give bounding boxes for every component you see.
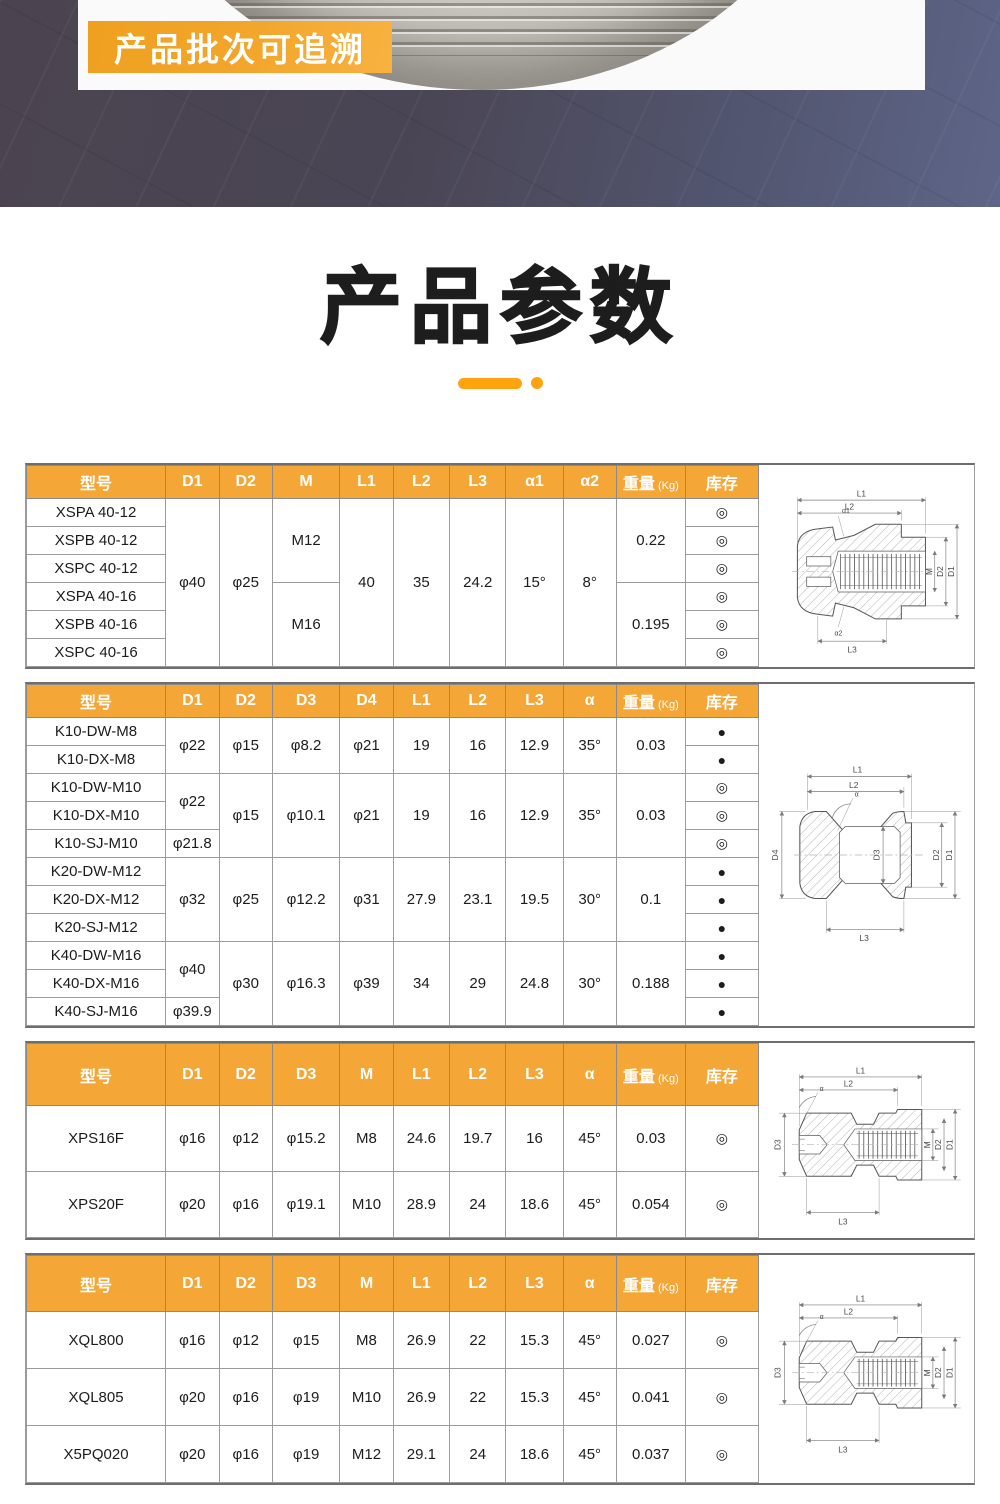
- table-cell: 30°: [563, 858, 616, 942]
- traceability-badge: 产品批次可追溯: [88, 21, 392, 73]
- stock-indicator: ◎: [685, 1369, 758, 1426]
- angle-label: α: [819, 1314, 823, 1321]
- header-row: 型号D1D2D3ML1L2L3α重量 (Kg)库存: [27, 1044, 759, 1106]
- table-cell: φ22: [166, 774, 219, 830]
- angle-label: α1: [841, 508, 849, 515]
- table-cell: φ16: [219, 1369, 272, 1426]
- table-cell: φ40: [166, 499, 219, 667]
- table-cell: 23.1: [450, 858, 506, 942]
- table-cell: 0.03: [616, 774, 685, 858]
- table-cell: φ21.8: [166, 830, 219, 858]
- table-cell: K40-DW-M16: [27, 942, 166, 970]
- table-cell: 19.5: [506, 858, 563, 942]
- table-cell: φ16: [219, 1426, 272, 1483]
- column-header-unit: (Kg): [655, 1282, 679, 1294]
- table-cell: 26.9: [393, 1312, 449, 1369]
- column-header: L3: [506, 685, 563, 718]
- table-cell: 16: [450, 774, 506, 858]
- table-cell: 0.195: [616, 583, 685, 667]
- technical-drawing-xsp40: L1 L2 L3 M D2 D1 α1 α2: [759, 465, 974, 667]
- table-cell: φ15: [219, 774, 272, 858]
- stock-indicator: ●: [685, 914, 758, 942]
- table-cell: M10: [340, 1172, 393, 1238]
- table-row: K10-DW-M8φ22φ15φ8.2φ21191612.935°0.03●: [27, 718, 759, 746]
- table-row: X5PQ020φ20φ16φ19M1229.12418.645°0.037◎: [27, 1426, 759, 1483]
- table-cell: 19: [393, 718, 449, 774]
- table-cell: 12.9: [506, 718, 563, 774]
- table-cell: 24.6: [393, 1106, 449, 1172]
- table-cell: 35: [393, 499, 449, 667]
- column-header: L2: [450, 1256, 506, 1312]
- angle-label: α2: [834, 631, 842, 638]
- spec-panel-k-series: 型号D1D2D3D4L1L2L3α重量 (Kg)库存K10-DW-M8φ22φ1…: [25, 682, 975, 1028]
- table-cell: φ22: [166, 718, 219, 774]
- table-cell: M8: [340, 1106, 393, 1172]
- stock-indicator: ◎: [685, 774, 758, 802]
- stock-indicator: ◎: [685, 527, 758, 555]
- table-row: K10-DW-M10φ22φ15φ10.1φ21191612.935°0.03◎: [27, 774, 759, 802]
- table-cell: 15°: [506, 499, 563, 667]
- table-cell: 27.9: [393, 858, 449, 942]
- table-cell: 19: [393, 774, 449, 858]
- table-cell: 0.22: [616, 499, 685, 583]
- table-cell: φ20: [166, 1369, 219, 1426]
- table-row: XPS20Fφ20φ16φ19.1M1028.92418.645°0.054◎: [27, 1172, 759, 1238]
- stock-indicator: ◎: [685, 1312, 758, 1369]
- table-cell: XQL800: [27, 1312, 166, 1369]
- table-cell: 22: [450, 1369, 506, 1426]
- dim-label: L2: [849, 780, 859, 790]
- column-header: D1: [166, 685, 219, 718]
- dim-label: D2: [933, 1139, 943, 1150]
- column-header: M: [340, 1256, 393, 1312]
- table-cell: 15.3: [506, 1369, 563, 1426]
- table-cell: 0.03: [616, 718, 685, 774]
- table-cell: 12.9: [506, 774, 563, 858]
- column-header: 型号: [27, 1044, 166, 1106]
- column-header: D3: [272, 1044, 339, 1106]
- dim-label: L3: [859, 933, 869, 943]
- spec-table-xql: 型号D1D2D3ML1L2L3α重量 (Kg)库存XQL800φ16φ12φ15…: [26, 1255, 759, 1483]
- table-cell: φ32: [166, 858, 219, 942]
- table-cell: 8°: [563, 499, 616, 667]
- table-cell: XSPB 40-16: [27, 611, 166, 639]
- column-header: α: [563, 1044, 616, 1106]
- drawing-svg-socket-plug: L1 L2 L3 D3 M D2: [764, 1048, 970, 1234]
- table-cell: K10-DW-M8: [27, 718, 166, 746]
- underline-dot: [531, 377, 543, 389]
- angle-label: α: [819, 1085, 823, 1092]
- column-header: 库存: [685, 1044, 758, 1106]
- column-header-unit: (Kg): [655, 1073, 679, 1085]
- stock-indicator: ●: [685, 942, 758, 970]
- table-cell: M8: [340, 1312, 393, 1369]
- column-header: α2: [563, 466, 616, 499]
- table-cell: 19.7: [450, 1106, 506, 1172]
- stock-indicator: ●: [685, 746, 758, 774]
- table-cell: XPS20F: [27, 1172, 166, 1238]
- spec-table-k-series: 型号D1D2D3D4L1L2L3α重量 (Kg)库存K10-DW-M8φ22φ1…: [26, 684, 759, 1026]
- dim-label: D4: [770, 849, 780, 860]
- column-header: L1: [393, 1044, 449, 1106]
- dim-label: D3: [772, 1139, 782, 1150]
- dim-label: L1: [856, 488, 866, 498]
- table-cell: 26.9: [393, 1369, 449, 1426]
- table-cell: M12: [340, 1426, 393, 1483]
- table-cell: K20-SJ-M12: [27, 914, 166, 942]
- column-header: 库存: [685, 685, 758, 718]
- table-cell: X5PQ020: [27, 1426, 166, 1483]
- table-row: XPS16Fφ16φ12φ15.2M824.619.71645°0.03◎: [27, 1106, 759, 1172]
- dim-label: L1: [855, 1065, 865, 1075]
- header-row: 型号D1D2ML1L2L3α1α2重量 (Kg)库存: [27, 466, 759, 499]
- header-row: 型号D1D2D3ML1L2L3α重量 (Kg)库存: [27, 1256, 759, 1312]
- table-cell: 35°: [563, 718, 616, 774]
- stock-indicator: ◎: [685, 802, 758, 830]
- column-header: D2: [219, 466, 272, 499]
- column-header: 型号: [27, 685, 166, 718]
- table-cell: φ21: [340, 774, 393, 858]
- column-header-unit: (Kg): [655, 480, 679, 492]
- table-cell: K10-DW-M10: [27, 774, 166, 802]
- table-cell: M10: [340, 1369, 393, 1426]
- table-cell: φ25: [219, 858, 272, 942]
- dim-label: L1: [852, 765, 862, 775]
- table-cell: φ20: [166, 1426, 219, 1483]
- underline-bar: [458, 378, 522, 389]
- stock-indicator: ◎: [685, 499, 758, 527]
- dim-label: D2: [930, 849, 940, 860]
- column-header: L1: [393, 1256, 449, 1312]
- title-section: 产品参数: [0, 207, 1000, 389]
- stock-indicator: ◎: [685, 1172, 758, 1238]
- dim-label: L1: [855, 1293, 865, 1303]
- table-cell: XSPA 40-12: [27, 499, 166, 527]
- page-title: 产品参数: [0, 265, 1000, 351]
- table-cell: K10-DX-M10: [27, 802, 166, 830]
- dim-label: L3: [847, 644, 857, 654]
- table-cell: K40-SJ-M16: [27, 998, 166, 1026]
- stock-indicator: ●: [685, 886, 758, 914]
- stock-indicator: ◎: [685, 1426, 758, 1483]
- table-cell: φ8.2: [272, 718, 339, 774]
- dim-label: D2: [933, 1367, 943, 1378]
- table-cell: 45°: [563, 1369, 616, 1426]
- table-row: XQL800φ16φ12φ15M826.92215.345°0.027◎: [27, 1312, 759, 1369]
- table-cell: 29: [450, 942, 506, 1026]
- table-cell: φ10.1: [272, 774, 339, 858]
- spec-table-xsp40: 型号D1D2ML1L2L3α1α2重量 (Kg)库存XSPA 40-12φ40φ…: [26, 465, 759, 667]
- table-cell: φ31: [340, 858, 393, 942]
- table-cell: K20-DX-M12: [27, 886, 166, 914]
- column-header: L1: [393, 685, 449, 718]
- stock-indicator: ●: [685, 858, 758, 886]
- column-header: L3: [506, 1256, 563, 1312]
- column-header: D4: [340, 685, 393, 718]
- column-header: 型号: [27, 1256, 166, 1312]
- table-cell: 22: [450, 1312, 506, 1369]
- table-row: K40-DW-M16φ40φ30φ16.3φ39342924.830°0.188…: [27, 942, 759, 970]
- column-header: D1: [166, 466, 219, 499]
- column-header: 库存: [685, 466, 758, 499]
- table-cell: 0.041: [616, 1369, 685, 1426]
- dim-label: M: [922, 1369, 932, 1376]
- table-cell: φ21: [340, 718, 393, 774]
- column-header: 重量 (Kg): [616, 685, 685, 718]
- spec-panel-xps: 型号D1D2D3ML1L2L3α重量 (Kg)库存XPS16Fφ16φ12φ15…: [25, 1041, 975, 1240]
- table-row: XSPA 40-12φ40φ25M12403524.215°8°0.22◎: [27, 499, 759, 527]
- table-cell: φ16: [166, 1312, 219, 1369]
- stock-indicator: ◎: [685, 555, 758, 583]
- spec-panel-xsp40: 型号D1D2ML1L2L3α1α2重量 (Kg)库存XSPA 40-12φ40φ…: [25, 463, 975, 669]
- table-cell: φ19: [272, 1369, 339, 1426]
- column-header: α1: [506, 466, 563, 499]
- table-cell: 30°: [563, 942, 616, 1026]
- table-cell: φ25: [219, 499, 272, 667]
- table-cell: M12: [272, 499, 339, 583]
- table-cell: φ12.2: [272, 858, 339, 942]
- table-cell: 34: [393, 942, 449, 1026]
- table-cell: φ39.9: [166, 998, 219, 1026]
- table-cell: φ19: [272, 1426, 339, 1483]
- drawing-svg-spool-bushing: L1 L2 L3 D4 D3 D2: [762, 730, 972, 980]
- dim-label: L3: [838, 1445, 848, 1455]
- table-cell: 24: [450, 1172, 506, 1238]
- column-header: M: [340, 1044, 393, 1106]
- column-header: 型号: [27, 466, 166, 499]
- angle-label: α: [854, 790, 858, 798]
- technical-drawing-xps: L1 L2 L3 D3 M D2: [759, 1043, 974, 1238]
- column-header: D3: [272, 1256, 339, 1312]
- dim-label: D1: [946, 566, 956, 577]
- column-header: M: [272, 466, 339, 499]
- table-cell: 0.054: [616, 1172, 685, 1238]
- technical-drawing-xql: L1 L2 L3 D3 M D2: [759, 1255, 974, 1483]
- table-cell: 40: [340, 499, 393, 667]
- traceability-badge-label: 产品批次可追溯: [114, 23, 366, 71]
- table-cell: 0.188: [616, 942, 685, 1026]
- dim-label: D3: [772, 1367, 782, 1378]
- title-underline: [0, 377, 1000, 389]
- column-header: D2: [219, 1256, 272, 1312]
- table-row: XQL805φ20φ16φ19M1026.92215.345°0.041◎: [27, 1369, 759, 1426]
- column-header: D1: [166, 1256, 219, 1312]
- table-cell: 45°: [563, 1172, 616, 1238]
- table-cell: K40-DX-M16: [27, 970, 166, 998]
- table-cell: K20-DW-M12: [27, 858, 166, 886]
- table-cell: 24.2: [450, 499, 506, 667]
- table-cell: XSPB 40-12: [27, 527, 166, 555]
- drawing-svg-socket-plug-2: L1 L2 L3 D3 M D2: [764, 1260, 970, 1478]
- spec-table-xps: 型号D1D2D3ML1L2L3α重量 (Kg)库存XPS16Fφ16φ12φ15…: [26, 1043, 759, 1238]
- table-cell: K10-DX-M8: [27, 746, 166, 774]
- technical-drawing-k-series: L1 L2 L3 D4 D3 D2: [759, 684, 974, 1026]
- table-cell: φ12: [219, 1106, 272, 1172]
- table-cell: 16: [450, 718, 506, 774]
- dim-label: D1: [944, 849, 954, 860]
- dim-label: M: [923, 568, 933, 575]
- column-header: 重量 (Kg): [616, 466, 685, 499]
- stock-indicator: ◎: [685, 583, 758, 611]
- column-header: L2: [450, 685, 506, 718]
- table-cell: 28.9: [393, 1172, 449, 1238]
- table-cell: XQL805: [27, 1369, 166, 1426]
- table-cell: 0.027: [616, 1312, 685, 1369]
- dim-label: D1: [944, 1367, 954, 1378]
- dim-label: M: [922, 1141, 932, 1148]
- table-cell: φ20: [166, 1172, 219, 1238]
- column-header: L3: [506, 1044, 563, 1106]
- table-cell: 16: [506, 1106, 563, 1172]
- stock-indicator: ◎: [685, 611, 758, 639]
- dim-label: D2: [935, 566, 945, 577]
- drawing-svg-plug-internal-thread: L1 L2 L3 M D2 D1 α1 α2: [764, 469, 970, 663]
- column-header: L2: [450, 1044, 506, 1106]
- table-cell: 29.1: [393, 1426, 449, 1483]
- stock-indicator: ●: [685, 970, 758, 998]
- column-header: L3: [450, 466, 506, 499]
- table-cell: φ16: [166, 1106, 219, 1172]
- table-cell: 45°: [563, 1106, 616, 1172]
- column-header: D3: [272, 685, 339, 718]
- table-cell: XSPC 40-12: [27, 555, 166, 583]
- table-cell: φ12: [219, 1312, 272, 1369]
- column-header: α: [563, 1256, 616, 1312]
- table-cell: φ15: [219, 718, 272, 774]
- table-cell: 0.1: [616, 858, 685, 942]
- table-row: K20-DW-M12φ32φ25φ12.2φ3127.923.119.530°0…: [27, 858, 759, 886]
- table-cell: φ15.2: [272, 1106, 339, 1172]
- column-header: D1: [166, 1044, 219, 1106]
- table-cell: 45°: [563, 1426, 616, 1483]
- column-header: D2: [219, 1044, 272, 1106]
- table-cell: 15.3: [506, 1312, 563, 1369]
- hero-banner: 产品批次可追溯: [0, 0, 1000, 207]
- table-cell: XPS16F: [27, 1106, 166, 1172]
- table-cell: φ15: [272, 1312, 339, 1369]
- column-header-unit: (Kg): [655, 699, 679, 711]
- stock-indicator: ●: [685, 998, 758, 1026]
- column-header: 重量 (Kg): [616, 1044, 685, 1106]
- table-cell: M16: [272, 583, 339, 667]
- stock-indicator: ●: [685, 718, 758, 746]
- table-cell: φ16: [219, 1172, 272, 1238]
- table-cell: φ30: [219, 942, 272, 1026]
- stock-indicator: ◎: [685, 830, 758, 858]
- spec-panels: 型号D1D2ML1L2L3α1α2重量 (Kg)库存XSPA 40-12φ40φ…: [25, 463, 975, 1495]
- dim-label: D1: [944, 1139, 954, 1150]
- table-cell: 24.8: [506, 942, 563, 1026]
- column-header: L1: [340, 466, 393, 499]
- column-header: L2: [393, 466, 449, 499]
- table-cell: φ40: [166, 942, 219, 998]
- table-cell: φ39: [340, 942, 393, 1026]
- column-header: D2: [219, 685, 272, 718]
- column-header: α: [563, 685, 616, 718]
- table-cell: 35°: [563, 774, 616, 858]
- table-cell: φ19.1: [272, 1172, 339, 1238]
- spec-panel-xql: 型号D1D2D3ML1L2L3α重量 (Kg)库存XQL800φ16φ12φ15…: [25, 1253, 975, 1485]
- stock-indicator: ◎: [685, 639, 758, 667]
- dim-label: L2: [843, 1306, 853, 1316]
- stock-indicator: ◎: [685, 1106, 758, 1172]
- table-cell: K10-SJ-M10: [27, 830, 166, 858]
- table-cell: 18.6: [506, 1426, 563, 1483]
- dim-label: D3: [871, 849, 881, 860]
- table-cell: 0.037: [616, 1426, 685, 1483]
- table-cell: 0.03: [616, 1106, 685, 1172]
- header-row: 型号D1D2D3D4L1L2L3α重量 (Kg)库存: [27, 685, 759, 718]
- table-cell: 24: [450, 1426, 506, 1483]
- dim-label: L2: [843, 1078, 853, 1088]
- dim-label: L3: [838, 1216, 848, 1226]
- column-header: 库存: [685, 1256, 758, 1312]
- table-cell: 18.6: [506, 1172, 563, 1238]
- table-cell: 45°: [563, 1312, 616, 1369]
- table-cell: φ16.3: [272, 942, 339, 1026]
- column-header: 重量 (Kg): [616, 1256, 685, 1312]
- table-cell: XSPA 40-16: [27, 583, 166, 611]
- table-cell: XSPC 40-16: [27, 639, 166, 667]
